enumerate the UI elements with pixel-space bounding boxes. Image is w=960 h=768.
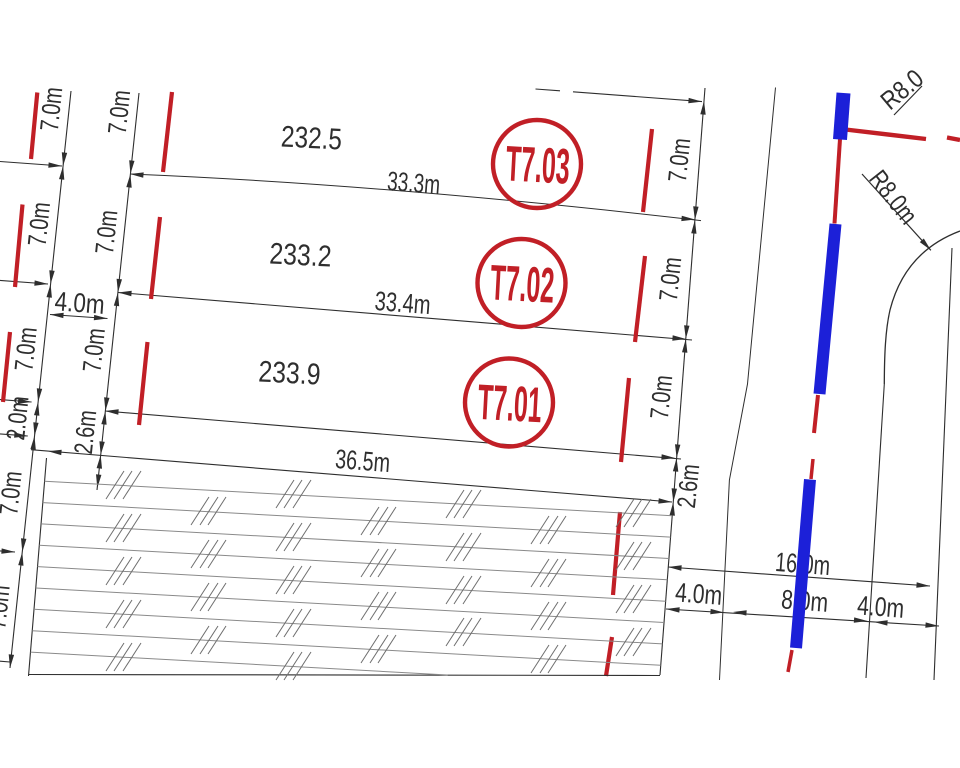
svg-text:36.5m: 36.5m <box>334 444 391 478</box>
svg-text:232.5: 232.5 <box>280 120 343 156</box>
svg-text:T7.03: T7.03 <box>504 135 571 194</box>
svg-text:2.6m: 2.6m <box>671 463 705 510</box>
svg-text:7.0m: 7.0m <box>644 374 678 421</box>
svg-text:7.0m: 7.0m <box>22 201 56 248</box>
svg-text:7.0m: 7.0m <box>34 86 68 133</box>
svg-text:2.6m: 2.6m <box>68 409 102 456</box>
svg-text:4.0m: 4.0m <box>856 590 905 624</box>
svg-text:33.4m: 33.4m <box>374 286 432 320</box>
svg-text:33.3m: 33.3m <box>386 166 441 200</box>
svg-text:T7.01: T7.01 <box>476 374 543 433</box>
svg-text:7.0m: 7.0m <box>8 326 42 373</box>
svg-text:4.0m: 4.0m <box>54 286 106 320</box>
svg-text:2.0m: 2.0m <box>0 395 34 442</box>
svg-text:7.0m: 7.0m <box>662 137 696 184</box>
svg-text:7.0m: 7.0m <box>77 327 111 374</box>
svg-text:233.9: 233.9 <box>258 355 322 391</box>
svg-text:4.0m: 4.0m <box>674 577 723 611</box>
svg-text:T7.02: T7.02 <box>489 254 556 313</box>
svg-text:7.0m: 7.0m <box>0 470 28 517</box>
svg-text:233.2: 233.2 <box>269 237 333 273</box>
svg-text:7.0m: 7.0m <box>102 89 136 136</box>
svg-text:7.0m: 7.0m <box>89 209 123 256</box>
svg-text:7.0m: 7.0m <box>653 256 687 303</box>
